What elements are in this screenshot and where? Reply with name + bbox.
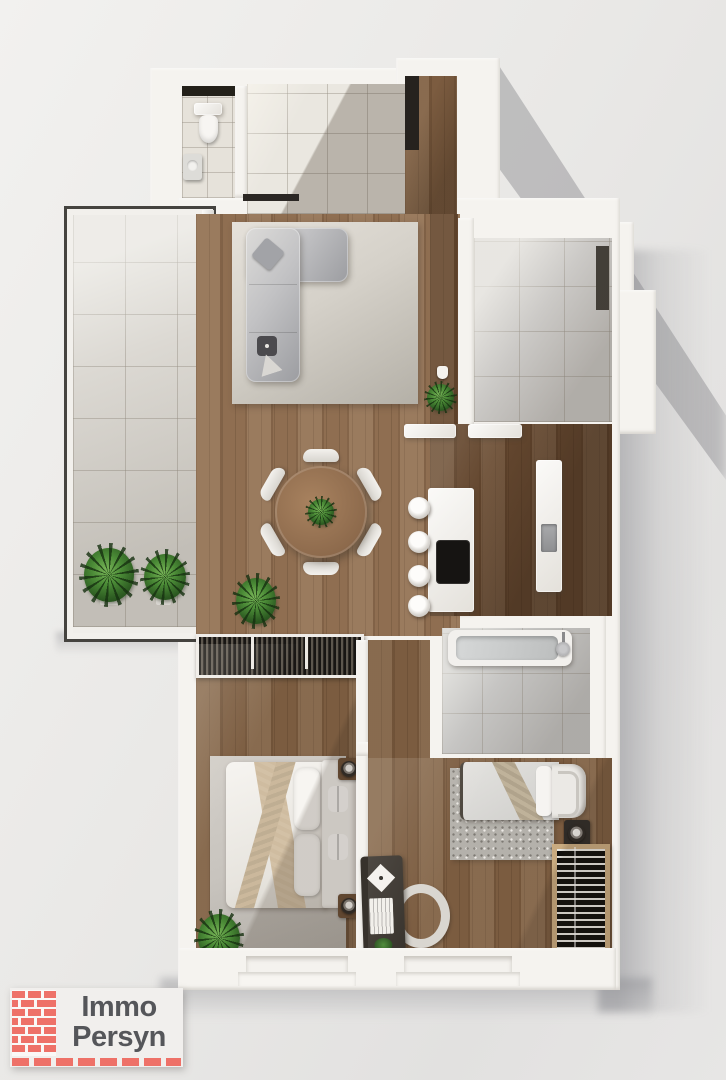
logo-line-1: Immo	[58, 992, 180, 1022]
sofa-seam	[249, 332, 297, 333]
brick-row	[12, 1036, 56, 1043]
nightstand-lamp-icon	[341, 761, 357, 777]
kitchen-counter-top-right	[468, 424, 522, 438]
wall-lamp-icon	[437, 366, 448, 379]
dining-chair	[303, 562, 339, 575]
headboard-inner	[558, 771, 579, 817]
brick-row	[12, 1009, 56, 1016]
kitchen-sink-icon	[541, 524, 557, 552]
double-bed	[226, 762, 356, 908]
wc-entry-wall	[235, 86, 247, 198]
logo-text: Immo Persyn	[58, 992, 180, 1054]
wardrobe-divider	[305, 637, 308, 669]
bar-stool	[408, 595, 430, 617]
toilet-icon	[199, 115, 218, 143]
headboard-cushion	[328, 834, 348, 860]
door-threshold	[243, 194, 299, 201]
wardrobe-divider	[251, 637, 254, 669]
side-table-dot	[265, 344, 269, 348]
desk-keyboard	[369, 898, 394, 935]
bed-pillow	[294, 834, 320, 896]
nightstand-lamp-icon	[568, 825, 585, 842]
hall-plant-icon	[427, 384, 454, 411]
balcony-plant-icon	[84, 548, 134, 602]
bathtub-basin	[456, 636, 558, 660]
toilet-cistern	[194, 103, 222, 115]
topright-room-west-wall	[458, 218, 474, 434]
sofa	[246, 228, 350, 382]
sofa-seam	[249, 284, 297, 285]
brick-row	[12, 991, 56, 998]
wardrobe-icon	[196, 634, 364, 678]
headboard-cushion	[328, 786, 348, 812]
radiator-line	[574, 847, 576, 953]
window-sill-step	[396, 972, 520, 986]
brick-row	[12, 1000, 56, 1007]
nightstand-lamp-icon	[341, 898, 357, 914]
dining-chair	[303, 449, 339, 462]
brick-border	[12, 1058, 181, 1066]
storage-niche	[596, 246, 609, 310]
kitchen-counter-top-left	[404, 424, 456, 438]
logo-line-2: Persyn	[58, 1022, 180, 1052]
bar-stool	[408, 497, 430, 519]
bar-stool	[408, 531, 430, 553]
bar-stool	[408, 565, 430, 587]
corridor-cabinet	[405, 76, 419, 150]
brick-row	[12, 1027, 56, 1034]
balcony-plant-icon	[144, 554, 186, 600]
cooktop-icon	[436, 540, 470, 584]
single-bed	[460, 762, 586, 820]
brick-wall-icon	[12, 990, 56, 1056]
desk	[360, 855, 405, 954]
bed-pillow	[294, 768, 320, 830]
bed-pillow	[536, 766, 552, 816]
living-plant-icon	[236, 578, 276, 624]
storage-room-floor	[474, 238, 612, 422]
table-plant-icon	[308, 499, 334, 525]
wc-window	[182, 86, 236, 96]
floor-plan-render: Immo Persyn	[0, 0, 726, 1080]
brick-row	[12, 1018, 56, 1025]
hallway-floor	[368, 640, 430, 762]
desk-paper-dot	[379, 876, 383, 880]
immo-persyn-logo: Immo Persyn	[10, 988, 183, 1067]
washbasin-bowl	[187, 160, 198, 171]
brick-row	[12, 1045, 56, 1052]
window-sill-step	[238, 972, 356, 986]
shower-head-icon	[556, 642, 570, 656]
